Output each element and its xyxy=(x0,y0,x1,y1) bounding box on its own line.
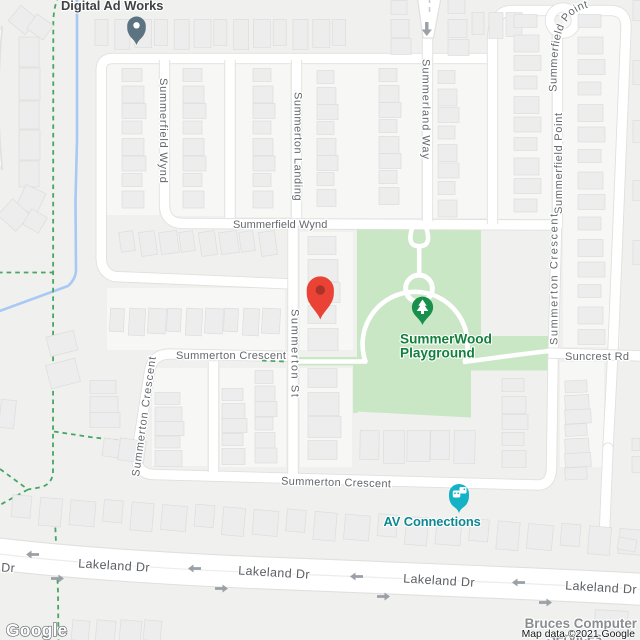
svg-text:Summerton St: Summerton St xyxy=(289,309,301,399)
svg-text:Summerfield Point: Summerfield Point xyxy=(553,112,565,214)
svg-text:Summerton Crescent: Summerton Crescent xyxy=(549,212,561,345)
svg-text:Summerton Crescent: Summerton Crescent xyxy=(176,350,286,362)
svg-text:Suncrest Rd: Suncrest Rd xyxy=(565,351,629,363)
svg-text:Summerland Way: Summerland Way xyxy=(420,59,432,160)
svg-text:Map data ©2021 Google: Map data ©2021 Google xyxy=(522,629,636,640)
svg-text:Digital Ad Works: Digital Ad Works xyxy=(61,0,163,13)
svg-text:Google: Google xyxy=(6,620,68,640)
svg-text:Summerton Landing: Summerton Landing xyxy=(292,92,304,201)
svg-text:Dr: Dr xyxy=(1,561,16,576)
svg-text:Summerfield Wynd: Summerfield Wynd xyxy=(233,219,327,231)
svg-text:AV Connections: AV Connections xyxy=(384,514,481,529)
svg-text:Summerfield Wynd: Summerfield Wynd xyxy=(157,78,169,184)
